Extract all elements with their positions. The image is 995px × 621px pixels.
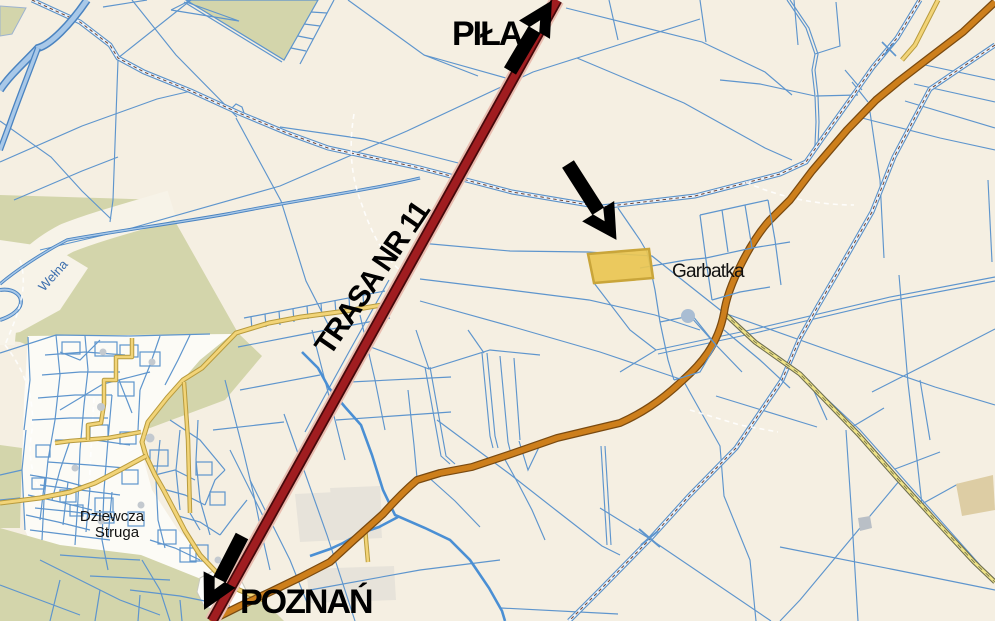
svg-text:PIŁA: PIŁA: [452, 15, 523, 53]
svg-text:Struga: Struga: [95, 524, 140, 541]
svg-text:Garbatka: Garbatka: [672, 261, 745, 282]
svg-text:Dziewcza: Dziewcza: [80, 508, 145, 525]
svg-text:POZNAŃ: POZNAŃ: [240, 583, 372, 621]
